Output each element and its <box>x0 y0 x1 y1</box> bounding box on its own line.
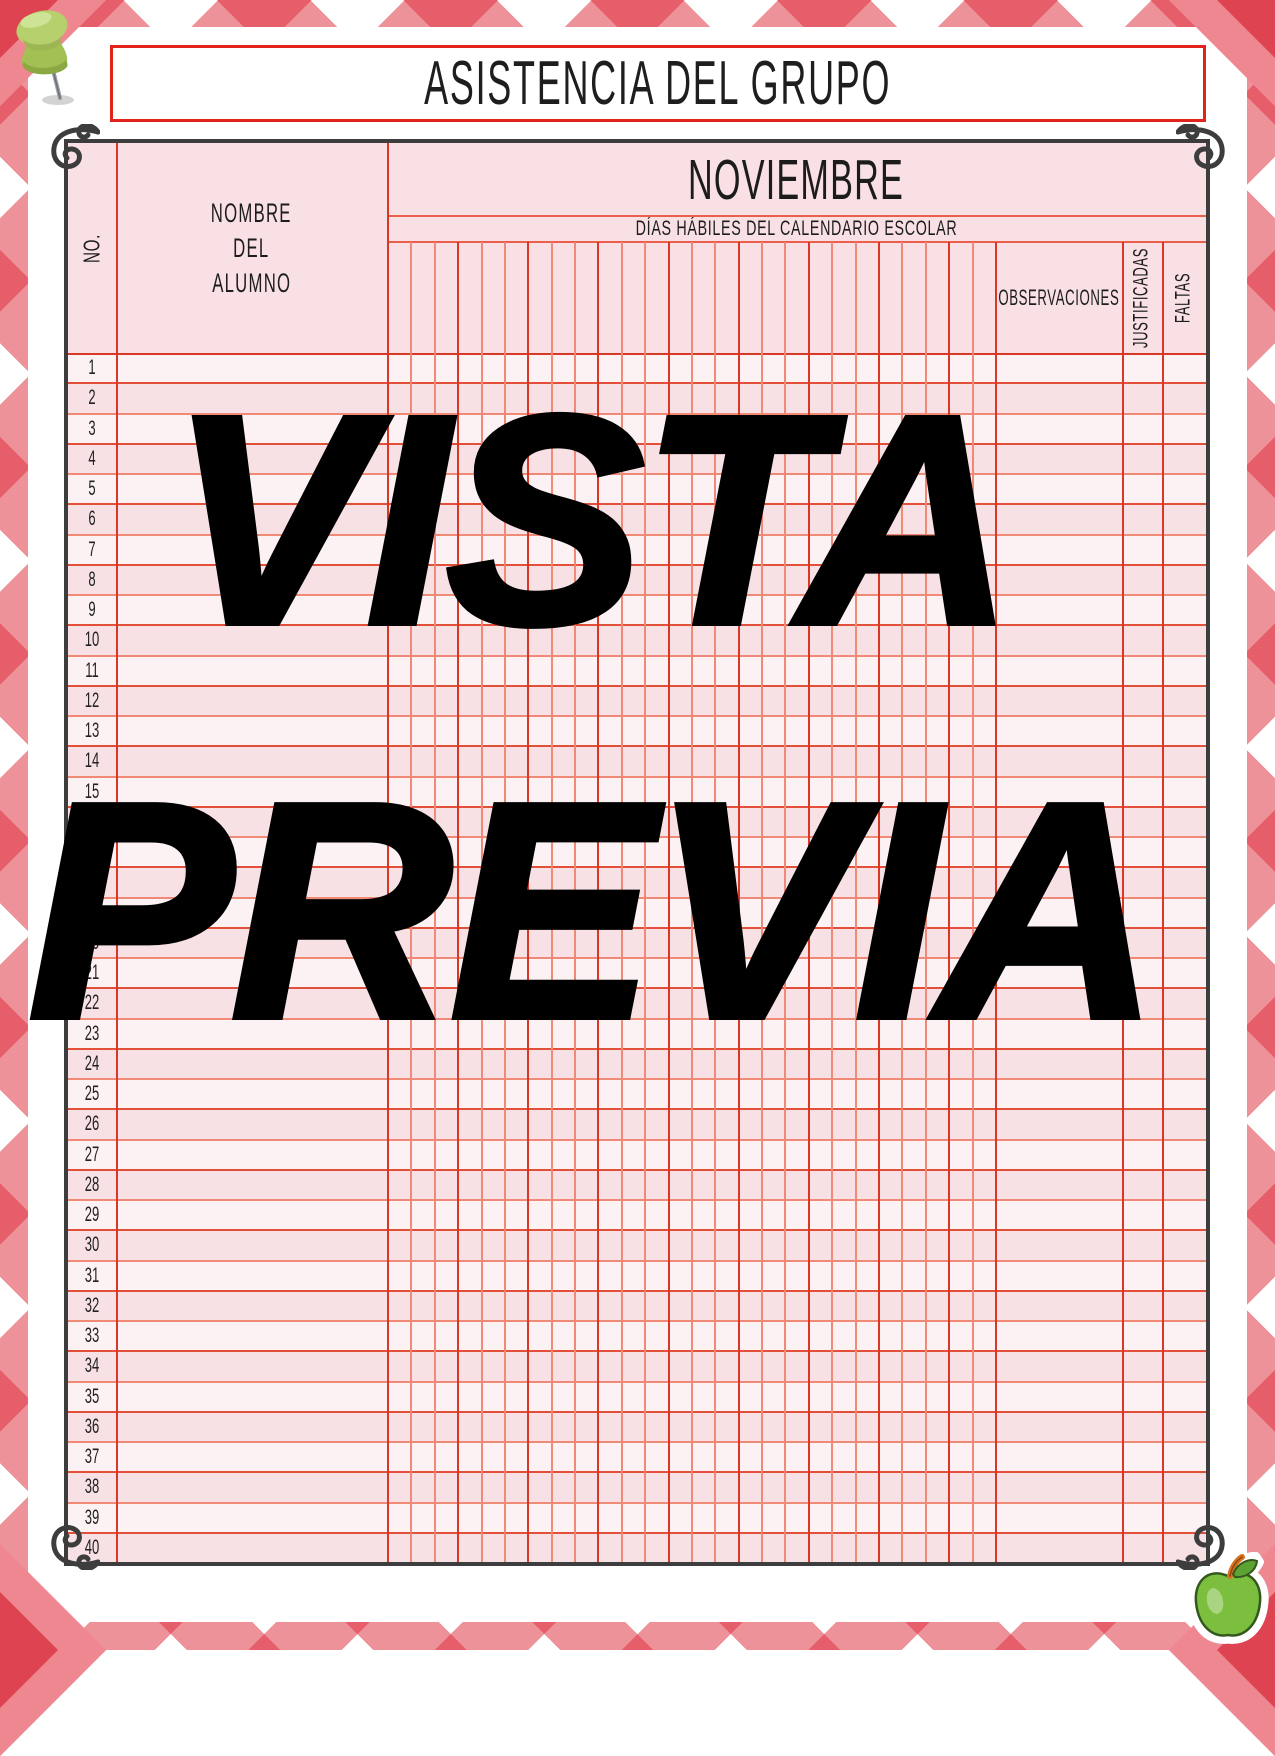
page: ASISTENCIA DEL GRUPO NO. NOMBRE DEL ALUM… <box>0 0 1275 1650</box>
days-subtitle-label: DÍAS HÁBILES DEL CALENDARIO ESCOLAR <box>636 217 958 241</box>
table-row: 38 <box>68 1473 1206 1503</box>
column-header-justified: JUSTIFICADAS <box>1122 242 1162 354</box>
title-box: ASISTENCIA DEL GRUPO <box>110 45 1206 122</box>
row-number: 2 <box>77 384 107 412</box>
row-number: 12 <box>77 687 107 715</box>
row-number: 30 <box>77 1231 107 1259</box>
flourish-icon <box>1176 124 1228 176</box>
row-number: 5 <box>77 475 107 503</box>
observations-label: OBSERVACIONES <box>998 285 1119 311</box>
column-header-absences: FALTAS <box>1162 242 1206 354</box>
row-number: 38 <box>77 1473 107 1501</box>
row-number: 26 <box>77 1110 107 1138</box>
row-number: 35 <box>77 1383 107 1411</box>
grid-line <box>387 215 1206 217</box>
row-number: 32 <box>77 1292 107 1320</box>
row-number: 1 <box>77 354 107 382</box>
absences-label: FALTAS <box>1172 273 1196 323</box>
table-row: 40 <box>68 1534 1206 1562</box>
month-header: NOVIEMBRE <box>387 143 1206 216</box>
row-number: 3 <box>77 415 107 443</box>
table-row: 37 <box>68 1443 1206 1473</box>
table-row: 12 <box>68 687 1206 717</box>
row-number: 28 <box>77 1171 107 1199</box>
grid-line <box>387 241 1206 243</box>
page-title: ASISTENCIA DEL GRUPO <box>424 48 891 119</box>
column-header-observations: OBSERVACIONES <box>995 242 1122 354</box>
days-subtitle-band: DÍAS HÁBILES DEL CALENDARIO ESCOLAR <box>387 216 1206 242</box>
table-row: 32 <box>68 1292 1206 1322</box>
column-header-student-name: NOMBRE DEL ALUMNO <box>116 143 387 354</box>
table-row: 26 <box>68 1110 1206 1140</box>
table-row: 27 <box>68 1141 1206 1171</box>
table-row: 28 <box>68 1171 1206 1201</box>
flourish-icon <box>48 124 100 176</box>
name-header-line: NOMBRE <box>211 198 292 229</box>
row-number: 8 <box>77 566 107 594</box>
row-number: 36 <box>77 1413 107 1441</box>
pushpin-icon <box>8 4 90 112</box>
table-row: 36 <box>68 1413 1206 1443</box>
row-number: 11 <box>77 657 107 685</box>
table-row: 34 <box>68 1352 1206 1382</box>
row-number: 27 <box>77 1141 107 1169</box>
row-number: 7 <box>77 536 107 564</box>
table-row: 35 <box>68 1383 1206 1413</box>
table-row: 25 <box>68 1080 1206 1110</box>
row-number: 6 <box>77 505 107 533</box>
row-number: 31 <box>77 1262 107 1290</box>
row-number: 34 <box>77 1352 107 1380</box>
flourish-icon <box>48 1518 100 1570</box>
no-header-label: NO. <box>78 234 105 263</box>
apple-icon <box>1186 1552 1270 1644</box>
row-number: 25 <box>77 1080 107 1108</box>
table-row: 33 <box>68 1322 1206 1352</box>
row-number: 10 <box>77 626 107 654</box>
table-row: 31 <box>68 1262 1206 1292</box>
row-number: 29 <box>77 1201 107 1229</box>
table-row: 29 <box>68 1201 1206 1231</box>
name-header-line: DEL <box>233 233 269 264</box>
watermark-vista: VISTA <box>138 396 1043 646</box>
month-label: NOVIEMBRE <box>688 147 904 213</box>
row-number: 37 <box>77 1443 107 1471</box>
table-row: 30 <box>68 1231 1206 1261</box>
row-number: 33 <box>77 1322 107 1350</box>
row-number: 4 <box>77 445 107 473</box>
justified-label: JUSTIFICADAS <box>1130 248 1154 348</box>
row-number: 9 <box>77 596 107 624</box>
name-header-line: ALUMNO <box>212 268 291 299</box>
table-row: 39 <box>68 1504 1206 1534</box>
watermark-previa: PREVIA <box>0 786 1192 1036</box>
